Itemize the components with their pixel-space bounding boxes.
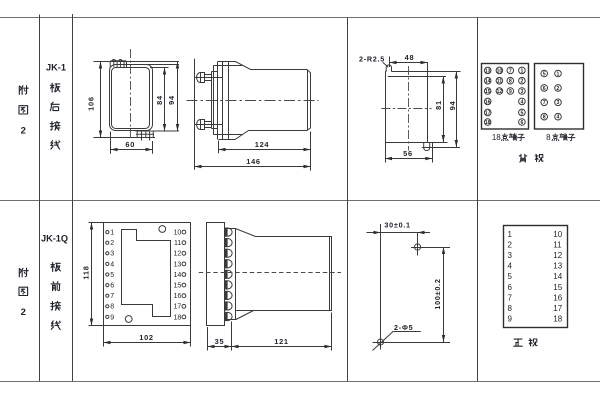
svg-text:15: 15 (174, 283, 182, 290)
svg-text:84: 84 (155, 95, 164, 105)
svg-text:8: 8 (508, 304, 513, 313)
svg-text:18: 18 (553, 315, 562, 324)
svg-text:1: 1 (110, 230, 114, 237)
svg-text:35: 35 (215, 337, 225, 346)
svg-text:18: 18 (174, 314, 182, 321)
svg-text:11: 11 (553, 240, 562, 249)
svg-text:94: 94 (167, 95, 176, 105)
svg-text:100±0.2: 100±0.2 (433, 278, 442, 309)
svg-text:13: 13 (485, 68, 491, 74)
svg-text:12: 12 (553, 251, 562, 260)
svg-text:2: 2 (21, 125, 26, 136)
svg-text:2: 2 (21, 307, 26, 318)
svg-text:17: 17 (485, 110, 491, 116)
svg-text:2: 2 (520, 79, 523, 85)
svg-text:9: 9 (110, 314, 114, 321)
svg-text:4: 4 (508, 262, 513, 271)
svg-text:2: 2 (557, 86, 560, 92)
svg-text:JK-1Q: JK-1Q (41, 233, 68, 243)
svg-text:5: 5 (543, 71, 546, 77)
svg-text:16: 16 (553, 293, 562, 302)
svg-text:4: 4 (520, 99, 523, 105)
svg-text:1: 1 (508, 230, 513, 239)
svg-text:94: 94 (448, 101, 457, 111)
svg-text:2: 2 (110, 240, 114, 247)
svg-text:2-R2.5: 2-R2.5 (359, 55, 385, 64)
svg-text:13: 13 (174, 261, 182, 268)
svg-text:2-Φ5: 2-Φ5 (394, 323, 413, 332)
svg-text:6: 6 (520, 120, 523, 126)
svg-text:5: 5 (508, 272, 513, 281)
svg-text:13: 13 (553, 262, 562, 271)
svg-text:15: 15 (553, 283, 562, 292)
svg-text:106: 106 (87, 96, 96, 111)
svg-text:1: 1 (557, 71, 560, 77)
svg-text:7: 7 (110, 293, 114, 300)
svg-text:10: 10 (174, 230, 182, 237)
svg-text:146: 146 (246, 157, 261, 166)
svg-text:6: 6 (508, 283, 513, 292)
svg-text:11: 11 (174, 240, 181, 247)
svg-text:3: 3 (557, 100, 560, 106)
svg-text:2: 2 (508, 240, 513, 249)
svg-text:17: 17 (553, 304, 562, 313)
svg-text:3: 3 (110, 251, 114, 258)
svg-text:7: 7 (509, 68, 512, 74)
svg-text:102: 102 (139, 333, 154, 342)
svg-text:14: 14 (174, 272, 182, 279)
svg-text:8: 8 (509, 79, 512, 85)
svg-text:56: 56 (403, 149, 413, 158)
svg-text:16: 16 (174, 293, 182, 300)
svg-text:5: 5 (520, 110, 523, 116)
svg-text:15: 15 (485, 89, 491, 95)
svg-text:4: 4 (557, 115, 560, 121)
svg-text:18: 18 (492, 133, 501, 142)
svg-text:JK-1: JK-1 (46, 63, 66, 73)
svg-text:4: 4 (110, 261, 114, 268)
svg-text:3: 3 (508, 251, 513, 260)
svg-text:14: 14 (553, 272, 562, 281)
svg-text:10: 10 (553, 230, 562, 239)
svg-text:6: 6 (543, 86, 546, 92)
svg-text:121: 121 (274, 337, 289, 346)
svg-text:12: 12 (174, 251, 182, 258)
svg-text:8: 8 (110, 304, 114, 311)
svg-text:10: 10 (497, 68, 503, 74)
svg-text:30±0.1: 30±0.1 (384, 221, 410, 230)
svg-text:7: 7 (508, 293, 513, 302)
svg-text:118: 118 (81, 265, 90, 279)
svg-text:16: 16 (485, 99, 491, 105)
svg-text:8: 8 (543, 115, 546, 121)
svg-text:7: 7 (543, 100, 546, 106)
svg-text:5: 5 (110, 272, 114, 279)
svg-text:12: 12 (497, 89, 503, 95)
svg-text:60: 60 (125, 140, 135, 149)
svg-text:3: 3 (520, 89, 523, 95)
svg-text:6: 6 (110, 283, 114, 290)
svg-text:1: 1 (520, 68, 523, 74)
svg-text:124: 124 (255, 140, 270, 149)
svg-text:8: 8 (546, 133, 551, 142)
svg-text:17: 17 (174, 304, 182, 311)
svg-text:9: 9 (508, 315, 513, 324)
svg-text:48: 48 (405, 53, 415, 62)
svg-text:81: 81 (434, 100, 443, 110)
svg-text:18: 18 (485, 120, 491, 126)
svg-text:9: 9 (509, 89, 512, 95)
svg-text:11: 11 (497, 79, 503, 85)
svg-text:14: 14 (485, 79, 491, 85)
